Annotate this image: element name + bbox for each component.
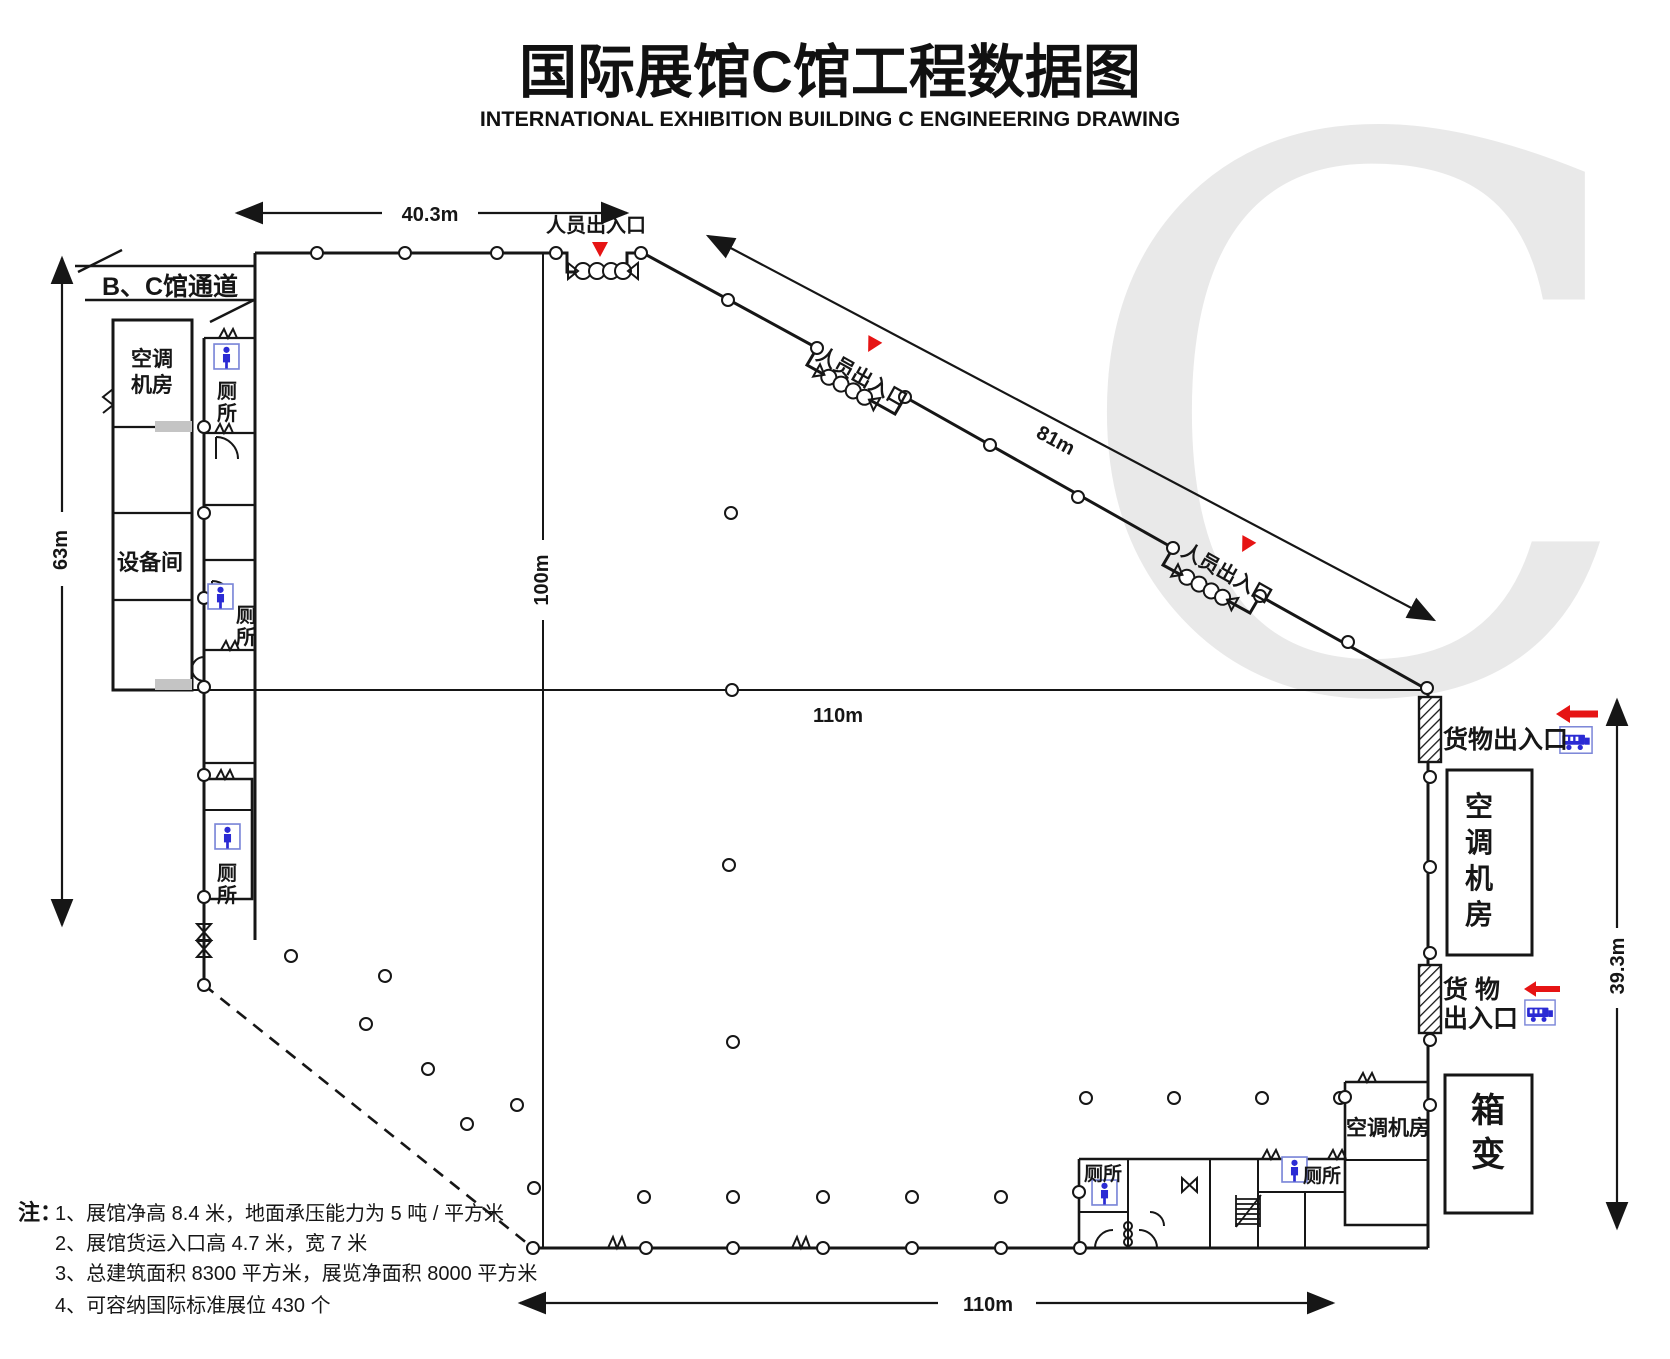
toilet-char: 所 — [236, 626, 256, 649]
passage-label: B、C馆通道 — [102, 272, 238, 301]
cargo-door-opening-upper — [1419, 697, 1441, 762]
dim-mid-width: 110m — [813, 705, 863, 727]
floor-plan-svg: C — [0, 0, 1670, 1359]
person-icon — [215, 824, 240, 849]
cargo-door-opening-lower — [1419, 965, 1441, 1033]
cargo-entrance-label: 货物出入口 — [1443, 725, 1568, 754]
notes-block: 注： 1、展馆净高 8.4 米，地面承压能力为 5 吨 / 平方米 2、展馆货运… — [18, 1200, 537, 1317]
box-transformer-char: 箱 — [1471, 1092, 1505, 1130]
ac-room-label: 空调机房 — [1346, 1116, 1430, 1140]
equipment-room-label: 设备间 — [117, 550, 183, 575]
person-entrance-label: 人员出入口 — [546, 214, 646, 237]
cargo-entrance-label-line1: 货 物 — [1443, 975, 1500, 1004]
ac-room-vertical-char: 房 — [1465, 898, 1493, 930]
ac-room-vertical-char: 机 — [1465, 863, 1493, 894]
ac-room-label-line1: 空调 — [131, 347, 173, 371]
dim-right-height: 39.3m — [1607, 938, 1629, 995]
note-item: 4、可容纳国际标准展位 430 个 — [55, 1294, 331, 1317]
toilet-char: 厕 — [236, 605, 256, 627]
note-item: 3、总建筑面积 8300 平方米，展览净面积 8000 平方米 — [55, 1262, 537, 1285]
red-entrance-triangle-icon — [861, 335, 882, 356]
page-title: 国际展馆C馆工程数据图 — [519, 40, 1141, 105]
toilet-char: 所 — [217, 884, 237, 907]
cargo-entrance-label-line2: 出入口 — [1443, 1005, 1518, 1033]
toilet-char: 厕 — [217, 863, 237, 885]
box-transformer-char: 变 — [1471, 1136, 1505, 1174]
toilet-label: 厕所 — [1084, 1163, 1122, 1185]
dim-inner-height: 100m — [531, 554, 553, 605]
red-entrance-triangle-icon — [592, 242, 608, 257]
ac-room-label-line2: 机房 — [131, 373, 173, 397]
person-icon — [214, 344, 239, 369]
note-item: 2、展馆货运入口高 4.7 米，宽 7 米 — [55, 1232, 367, 1255]
note-item: 1、展馆净高 8.4 米，地面承压能力为 5 吨 / 平方米 — [55, 1202, 504, 1225]
dim-top-width: 40.3m — [402, 204, 459, 226]
red-left-arrow-icon — [1524, 981, 1560, 996]
toilet-char: 厕 — [217, 381, 237, 403]
toilet-char: 所 — [217, 402, 237, 425]
person-icon — [208, 584, 233, 609]
engineering-drawing-page: C — [0, 0, 1670, 1359]
dim-bottom-width: 110m — [963, 1294, 1013, 1316]
ac-room-vertical-char: 空 — [1465, 790, 1493, 822]
toilet-label: 厕所 — [1303, 1165, 1341, 1187]
truck-icon — [1525, 1000, 1555, 1025]
dim-left-height: 63m — [50, 530, 72, 570]
title-block: 国际展馆C馆工程数据图 INTERNATIONAL EXHIBITION BUI… — [480, 40, 1180, 131]
page-subtitle: INTERNATIONAL EXHIBITION BUILDING C ENGI… — [480, 107, 1180, 131]
ac-room-vertical-char: 调 — [1465, 827, 1493, 858]
